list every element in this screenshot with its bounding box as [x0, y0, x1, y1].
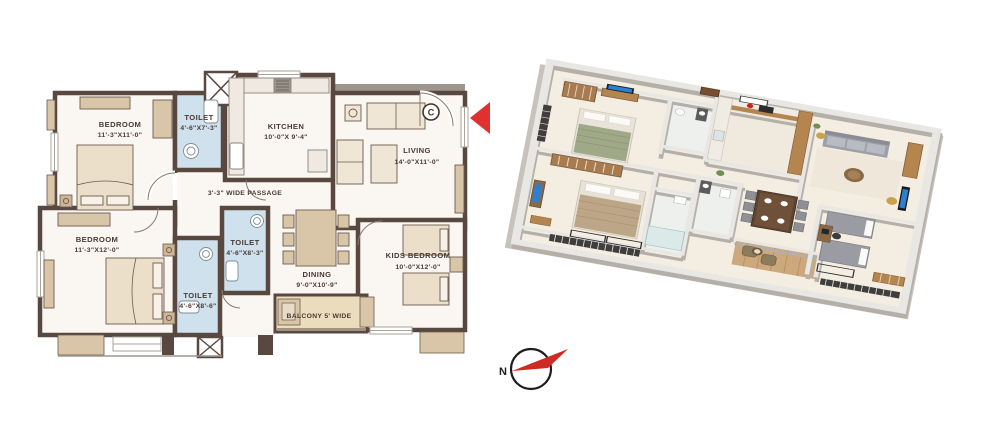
dims-toilet-bottom: 4'-6"X8'-6" — [179, 303, 216, 310]
label-living: LIVING — [403, 146, 431, 155]
label-passage: 3'-3" WIDE PASSAGE — [208, 190, 282, 197]
label-dining: DINING — [303, 270, 332, 279]
dims-dining: 9'-0"X10'-9" — [296, 282, 337, 289]
dining-table — [296, 210, 336, 266]
fridge — [308, 150, 327, 172]
dims-kids-bedroom: 10'-0"X12'-0" — [395, 264, 440, 271]
chaise — [371, 145, 397, 183]
label-toilet-mid: TOILET — [230, 238, 259, 247]
wardrobe — [80, 97, 130, 109]
cupboard — [153, 100, 172, 138]
console — [455, 165, 464, 213]
dining-furniture — [283, 210, 349, 266]
toilet-bottom-room — [175, 238, 220, 335]
compass-north-label: N — [499, 366, 507, 378]
balcony-planter — [360, 297, 374, 327]
label-toilet-bottom: TOILET — [183, 291, 212, 300]
floorplan-sheet: C BEDROOM 11'-3"X11'-0" TOILET 4'-6"X7'-… — [0, 0, 1000, 425]
side-unit — [450, 257, 463, 272]
compass-icon: N — [493, 336, 585, 406]
dims-living: 14'-0"X11'-0" — [395, 159, 440, 166]
dims-bedroom-bottom: 11'-3"X12'-0" — [75, 247, 120, 254]
dims-toilet-mid: 4'-6"X8'-3" — [226, 250, 263, 257]
basin — [184, 144, 199, 159]
bench — [44, 260, 54, 308]
dims-bedroom-top: 11'-3"X11'-0" — [98, 132, 143, 139]
label-kids-bedroom: KIDS BEDROOM — [386, 251, 451, 260]
dims-kitchen: 10'-0"X 9'-4" — [264, 134, 307, 141]
living-chajja — [331, 84, 465, 91]
sink — [230, 143, 243, 169]
label-toilet-top: TOILET — [184, 113, 213, 122]
dims-toilet-top: 4'-6"X7'-3" — [180, 125, 217, 132]
label-kitchen: KITCHEN — [268, 122, 305, 131]
floorplan-2d: C BEDROOM 11'-3"X11'-0" TOILET 4'-6"X7'-… — [18, 45, 498, 375]
label-balcony: BALCONY 5' WIDE — [287, 313, 352, 320]
side-table — [345, 105, 361, 121]
entry-arrow-icon — [470, 102, 490, 134]
label-bedroom-bottom: BEDROOM — [76, 235, 118, 244]
wardrobe — [58, 213, 110, 226]
floorplan-3d — [498, 40, 973, 362]
label-bedroom-top: BEDROOM — [99, 120, 141, 129]
entry-marker-label: C — [428, 108, 435, 118]
